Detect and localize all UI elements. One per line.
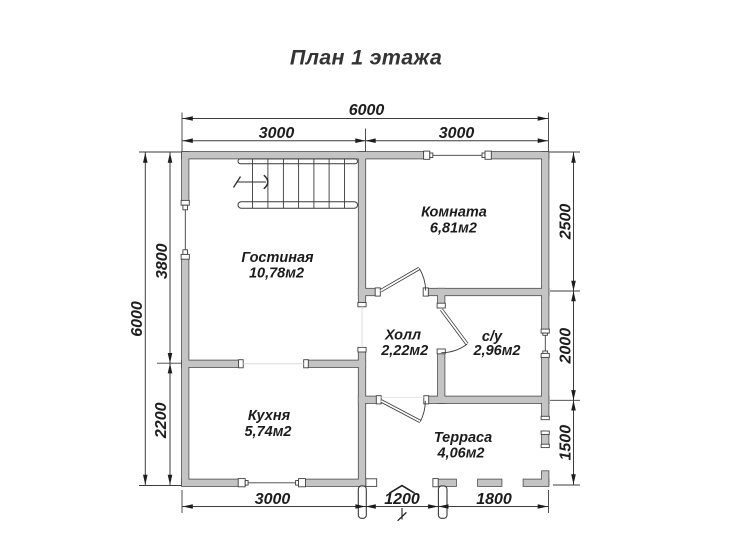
svg-text:2000: 2000 bbox=[557, 328, 574, 365]
svg-text:Кухня: Кухня bbox=[248, 408, 291, 424]
svg-text:5,74м2: 5,74м2 bbox=[244, 424, 291, 440]
svg-text:3800: 3800 bbox=[154, 243, 171, 279]
svg-text:3000: 3000 bbox=[259, 125, 295, 142]
svg-text:4,06м2: 4,06м2 bbox=[436, 446, 484, 462]
svg-text:6000: 6000 bbox=[349, 102, 385, 119]
svg-text:1500: 1500 bbox=[557, 425, 574, 461]
svg-text:10,78м2: 10,78м2 bbox=[249, 265, 304, 281]
svg-text:6000: 6000 bbox=[129, 301, 146, 337]
svg-text:План 1 этажа: План 1 этажа bbox=[290, 46, 442, 70]
svg-text:Гостиная: Гостиная bbox=[241, 250, 314, 266]
svg-text:2,22м2: 2,22м2 bbox=[380, 343, 428, 359]
svg-text:Комната: Комната bbox=[421, 204, 487, 220]
svg-text:Терраса: Терраса bbox=[434, 430, 492, 446]
svg-text:1200: 1200 bbox=[384, 491, 420, 508]
svg-text:6,81м2: 6,81м2 bbox=[430, 221, 477, 237]
svg-text:1800: 1800 bbox=[476, 491, 512, 508]
svg-text:3000: 3000 bbox=[255, 491, 291, 508]
svg-text:2500: 2500 bbox=[557, 204, 574, 241]
svg-text:3000: 3000 bbox=[439, 125, 475, 142]
svg-text:2,96м2: 2,96м2 bbox=[472, 343, 520, 359]
svg-text:2200: 2200 bbox=[153, 402, 170, 439]
svg-text:Холл: Холл bbox=[384, 328, 421, 344]
